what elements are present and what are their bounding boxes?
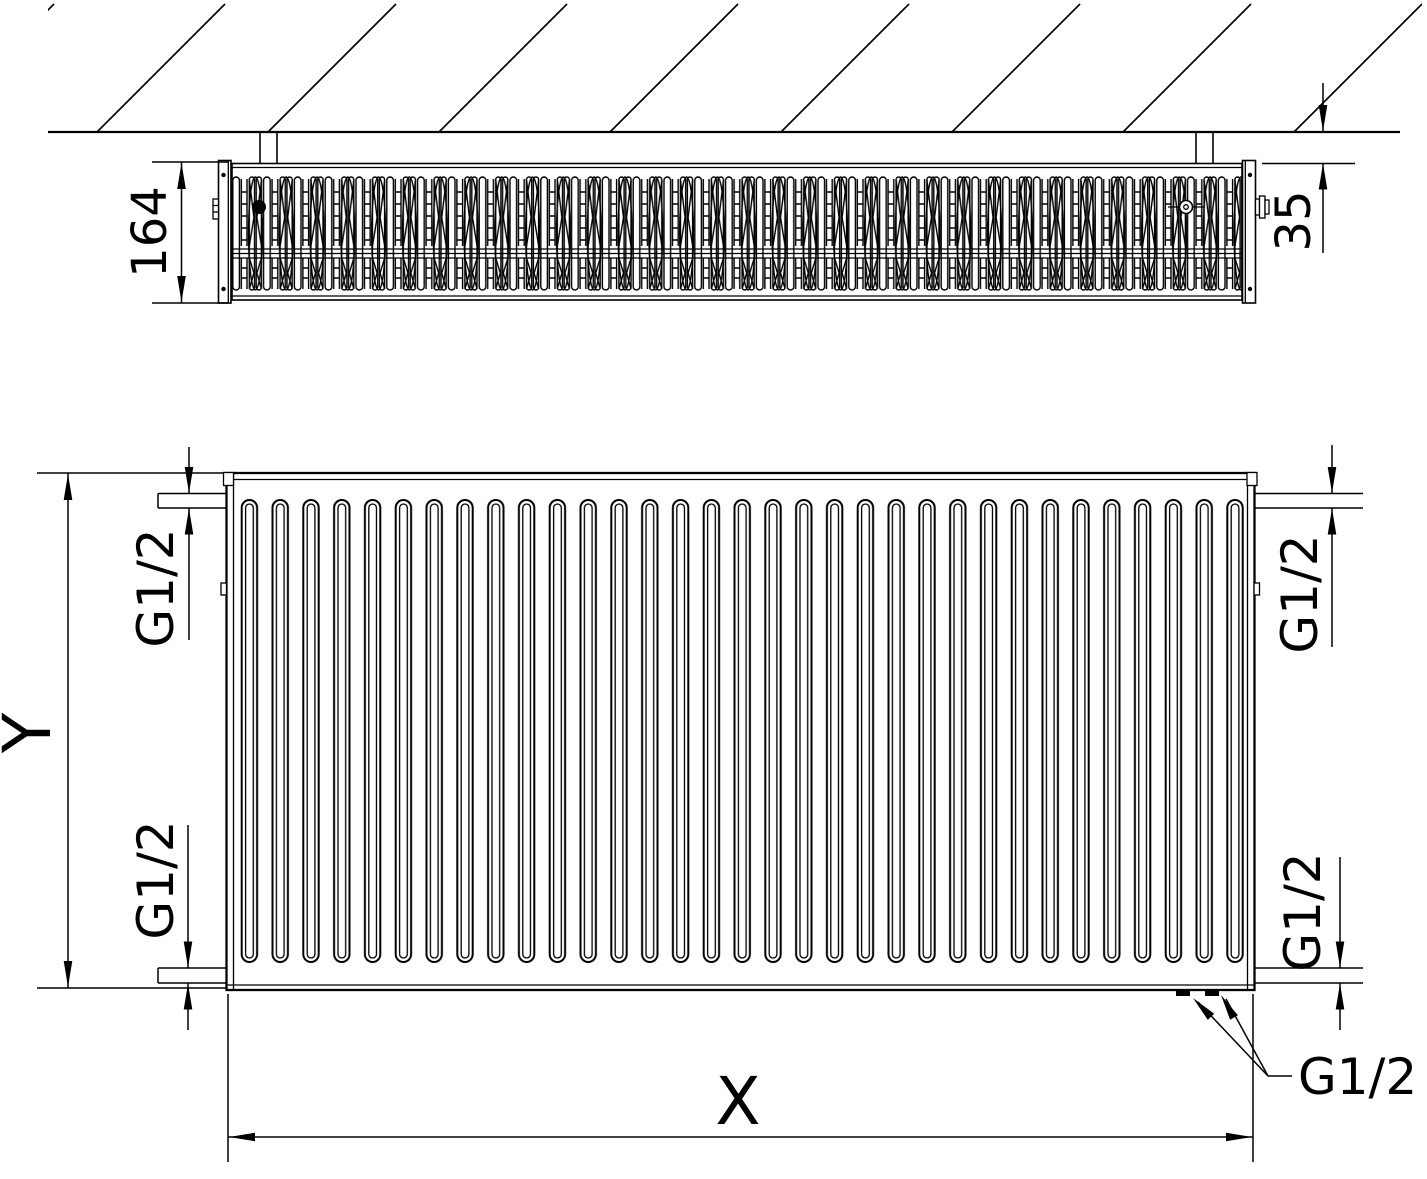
bottom-connection-tab [1176, 990, 1190, 997]
arrowhead [1193, 998, 1214, 1020]
conn-bottom-left-label: G1/2 [127, 820, 185, 939]
arrowhead [185, 467, 194, 493]
arrowhead [184, 942, 193, 968]
arrowhead [229, 1133, 255, 1142]
dimension-conn-top-right: G1/2 [1271, 445, 1336, 654]
radiator-top-view [213, 161, 1269, 304]
left-connection-nub [213, 199, 219, 219]
stub-top-right [1255, 494, 1364, 509]
left-edge-clip [221, 583, 227, 595]
front-view: Y X G1/2 G1/2 [0, 445, 1417, 1162]
dimension-width: X [228, 994, 1253, 1162]
conn-bottom-pair-label: G1/2 [1298, 1048, 1417, 1106]
arrowhead [185, 509, 194, 535]
conn-bottom-right-label: G1/2 [1274, 852, 1332, 971]
wall-bracket-right [1196, 132, 1213, 164]
top-right-corner-tab [1247, 473, 1257, 486]
arrowhead [1226, 1133, 1252, 1142]
depth-label: 164 [122, 186, 178, 278]
wall-bracket-left [260, 132, 277, 164]
arrowhead [1336, 942, 1345, 968]
radiator-front-view [158, 473, 1363, 997]
conn-top-right-label: G1/2 [1271, 534, 1329, 653]
dimension-conn-top-left: G1/2 [127, 447, 193, 648]
stub-top-left [158, 494, 227, 509]
wall-clearance-label: 35 [1266, 190, 1322, 251]
dimension-depth: 164 [122, 162, 228, 303]
wall-hatching [48, 1, 1422, 131]
convector-fin-pattern [232, 171, 1242, 295]
arrowhead [177, 163, 186, 189]
dimension-height: Y [0, 473, 227, 988]
front-panel-channels [234, 498, 1246, 965]
end-plate-left [219, 161, 232, 304]
drawing-canvas: 164 35 [0, 0, 1427, 1179]
arrowhead [1336, 984, 1345, 1010]
conn-top-left-label: G1/2 [127, 528, 185, 647]
top-view: 164 35 [48, 1, 1422, 303]
arrowhead [177, 276, 186, 302]
top-left-corner-tab [224, 473, 234, 486]
width-label: X [715, 1063, 760, 1140]
end-plate-right [1243, 161, 1256, 304]
arrowhead [64, 961, 73, 987]
height-label: Y [0, 712, 66, 754]
radiator-technical-drawing: 164 35 [0, 0, 1427, 1179]
arrowhead [1319, 164, 1328, 190]
leader-conn-bottom-pair: G1/2 [1193, 995, 1417, 1106]
arrowhead [1328, 509, 1337, 535]
left-bracket-screw [252, 200, 266, 214]
arrowhead [1328, 467, 1337, 493]
bottom-connection-tab [1205, 990, 1219, 997]
dimension-conn-bottom-right: G1/2 [1274, 852, 1344, 1030]
stub-bottom-left [158, 968, 227, 983]
right-edge-clip [1254, 583, 1260, 595]
arrowhead [1221, 995, 1238, 1020]
dimension-conn-bottom-left: G1/2 [127, 820, 192, 1030]
arrowhead [64, 474, 73, 500]
